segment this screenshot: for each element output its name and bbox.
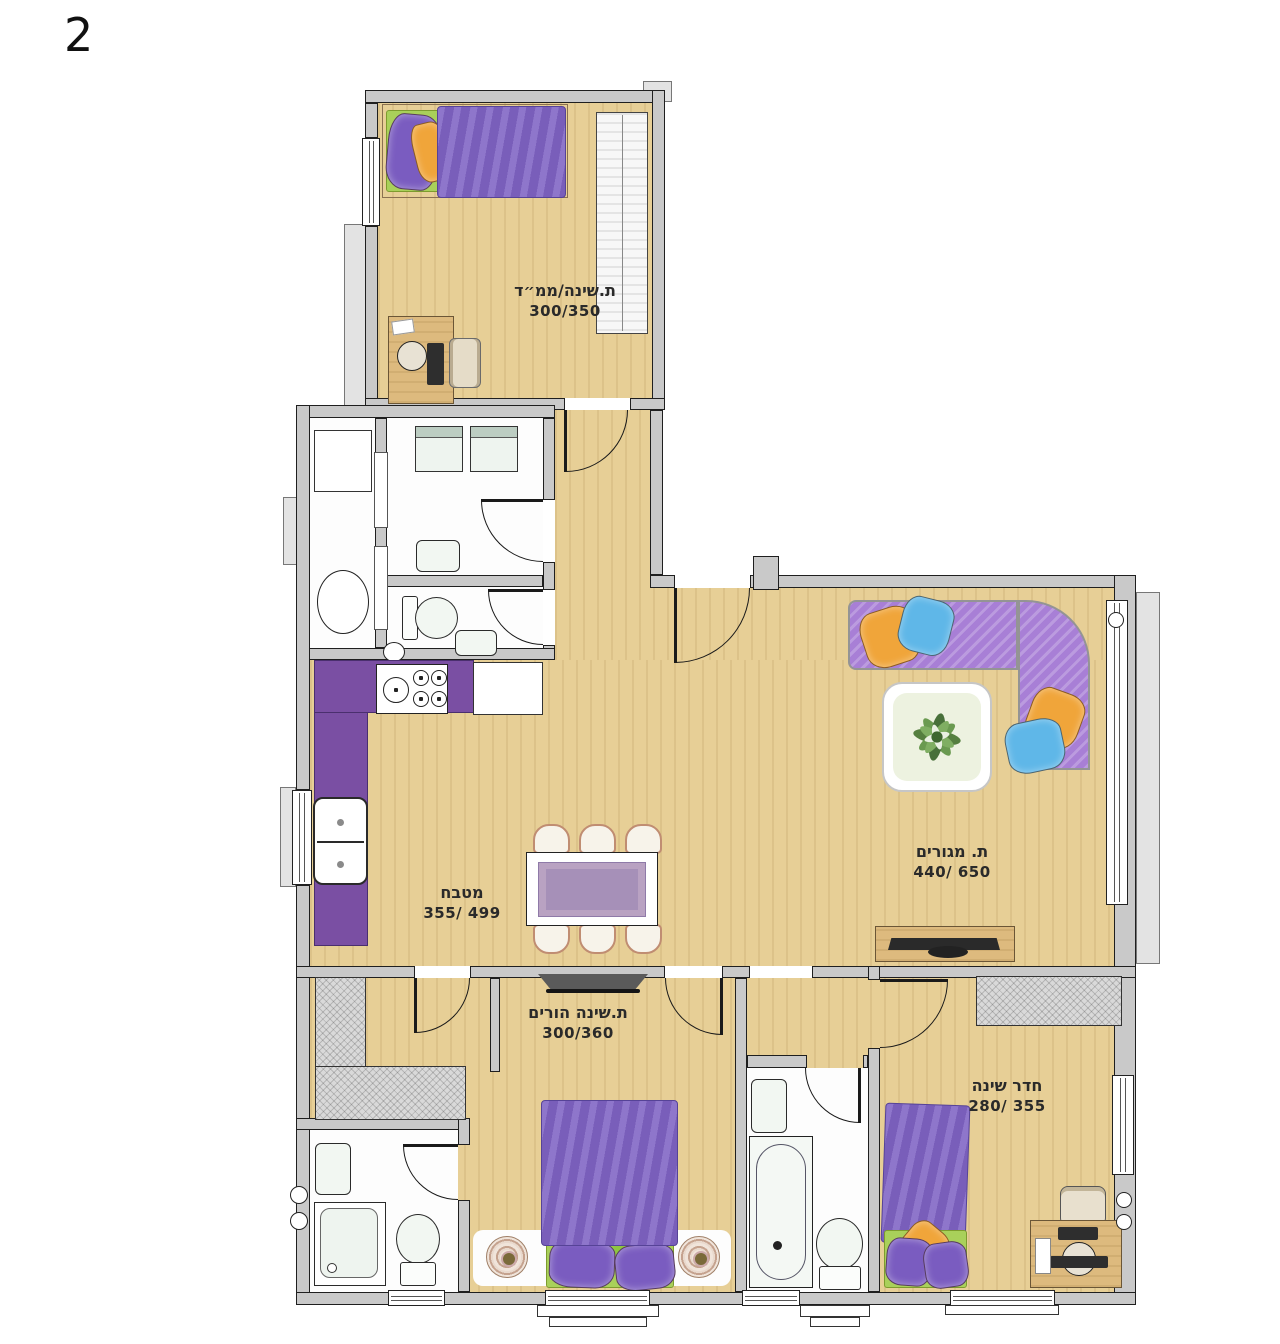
dryer: [470, 426, 518, 472]
room-label-parents: ת.שינה הורים 300/360: [528, 1003, 628, 1043]
wall-tv-screen: [546, 989, 640, 993]
room-label-living: ת. מגורים 440/ 650: [913, 842, 990, 882]
sink: [455, 630, 497, 656]
burner: [413, 670, 429, 686]
room-label-kitchen: מטבח 355/ 499: [423, 883, 500, 923]
wall: [650, 575, 675, 588]
burner: [383, 677, 409, 703]
pipe-shaft: [374, 546, 388, 630]
door-leaf: [403, 1144, 458, 1147]
room-label-saferoom: ת.שינה/ממ״ד 300/350: [514, 281, 616, 321]
wall: [365, 90, 665, 103]
pipe: [383, 642, 405, 662]
keyboard: [1058, 1227, 1098, 1240]
pipe: [1116, 1214, 1132, 1230]
wall: [722, 966, 750, 978]
wall-tv: [538, 974, 648, 990]
notepad: [1035, 1238, 1051, 1274]
dining-chair: [625, 824, 662, 854]
sink: [416, 540, 460, 572]
wall: [650, 410, 663, 575]
window: [1106, 600, 1128, 905]
monitor: [1050, 1256, 1108, 1268]
dining-chair: [533, 924, 570, 954]
sink: [315, 1143, 351, 1195]
wall: [296, 885, 310, 1305]
wall: [735, 978, 747, 1292]
bed-blanket: [437, 106, 566, 198]
entry-step: [810, 1317, 860, 1327]
pipe-shaft: [374, 452, 388, 528]
page-number: 2: [64, 8, 93, 62]
toilet-bowl: [816, 1218, 863, 1270]
wall: [750, 575, 1136, 588]
dining-chair: [579, 924, 616, 954]
door-leaf: [488, 589, 543, 592]
plant-icon: [897, 697, 977, 777]
drain: [337, 819, 344, 826]
door-leaf: [858, 1068, 861, 1123]
round-rug: [678, 1236, 720, 1278]
wall: [868, 1048, 880, 1292]
burner: [431, 670, 447, 686]
window: [362, 138, 380, 226]
pillow: [613, 1241, 677, 1293]
door-leaf: [564, 410, 567, 472]
bathtub-inner: [756, 1144, 806, 1280]
chair: [449, 338, 481, 388]
desk-chair-seat: [397, 341, 427, 371]
shower: [314, 1202, 386, 1286]
drain: [327, 1263, 337, 1273]
exterior-ledge: [344, 224, 366, 410]
exterior-ledge: [1136, 592, 1160, 964]
window: [292, 790, 312, 885]
door-leaf: [674, 588, 677, 663]
dining-chair: [533, 824, 570, 854]
window: [545, 1290, 650, 1306]
table-runner-inner: [546, 869, 638, 910]
kitchen-sink: [313, 797, 368, 885]
floor-plan: 2: [0, 0, 1280, 1344]
closet: [315, 1066, 466, 1120]
wall: [296, 405, 555, 418]
wall: [868, 966, 880, 980]
window: [950, 1290, 1055, 1306]
window: [388, 1290, 445, 1306]
pipe: [1116, 1192, 1132, 1208]
door-leaf: [720, 978, 723, 1035]
kitchen-counter-white: [473, 662, 543, 715]
entry-pillar: [753, 556, 779, 590]
toilet-bowl: [396, 1214, 440, 1264]
window: [1112, 1075, 1134, 1175]
toilet-tank: [819, 1266, 861, 1290]
sink-divider: [317, 841, 364, 843]
drain: [337, 861, 344, 868]
sink: [751, 1079, 787, 1133]
wall: [543, 418, 555, 500]
wall: [296, 648, 555, 660]
drain: [773, 1241, 782, 1250]
wall: [387, 575, 543, 587]
room-label-bedroom: חדר שינה 280/ 355: [968, 1076, 1045, 1116]
washing-machine: [415, 426, 463, 472]
bathtub: [749, 1136, 813, 1288]
boiler: [317, 570, 369, 634]
wall: [365, 103, 378, 138]
door-leaf: [481, 499, 543, 502]
wall: [630, 398, 665, 410]
dining-table: [526, 852, 658, 926]
wall: [458, 1118, 470, 1145]
tv-stand: [928, 946, 968, 958]
window: [742, 1290, 800, 1306]
entry-step: [549, 1317, 647, 1327]
wall: [458, 1200, 470, 1292]
wall: [747, 1055, 807, 1068]
closet: [976, 976, 1122, 1026]
stove: [376, 664, 448, 714]
pillow: [921, 1239, 971, 1291]
toilet-bowl: [415, 597, 458, 639]
wall: [296, 405, 310, 790]
burner: [431, 691, 447, 707]
wall: [652, 90, 665, 410]
wall: [543, 562, 555, 590]
round-rug: [486, 1236, 528, 1278]
wall: [365, 226, 378, 410]
pipe: [290, 1212, 308, 1230]
counter-box: [314, 430, 372, 492]
entry-step: [800, 1305, 870, 1317]
bed-blanket: [541, 1100, 678, 1246]
burner: [413, 691, 429, 707]
entry-step: [537, 1305, 659, 1317]
dining-chair: [579, 824, 616, 854]
window-sill: [945, 1305, 1059, 1315]
toilet-tank: [400, 1262, 436, 1286]
window-handle: [1108, 612, 1124, 628]
pillow: [548, 1239, 616, 1289]
door-leaf: [880, 979, 948, 982]
dining-chair: [625, 924, 662, 954]
wall: [490, 978, 500, 1072]
pipe: [290, 1186, 308, 1204]
door-leaf: [414, 978, 417, 1033]
computer-tower: [427, 343, 444, 385]
